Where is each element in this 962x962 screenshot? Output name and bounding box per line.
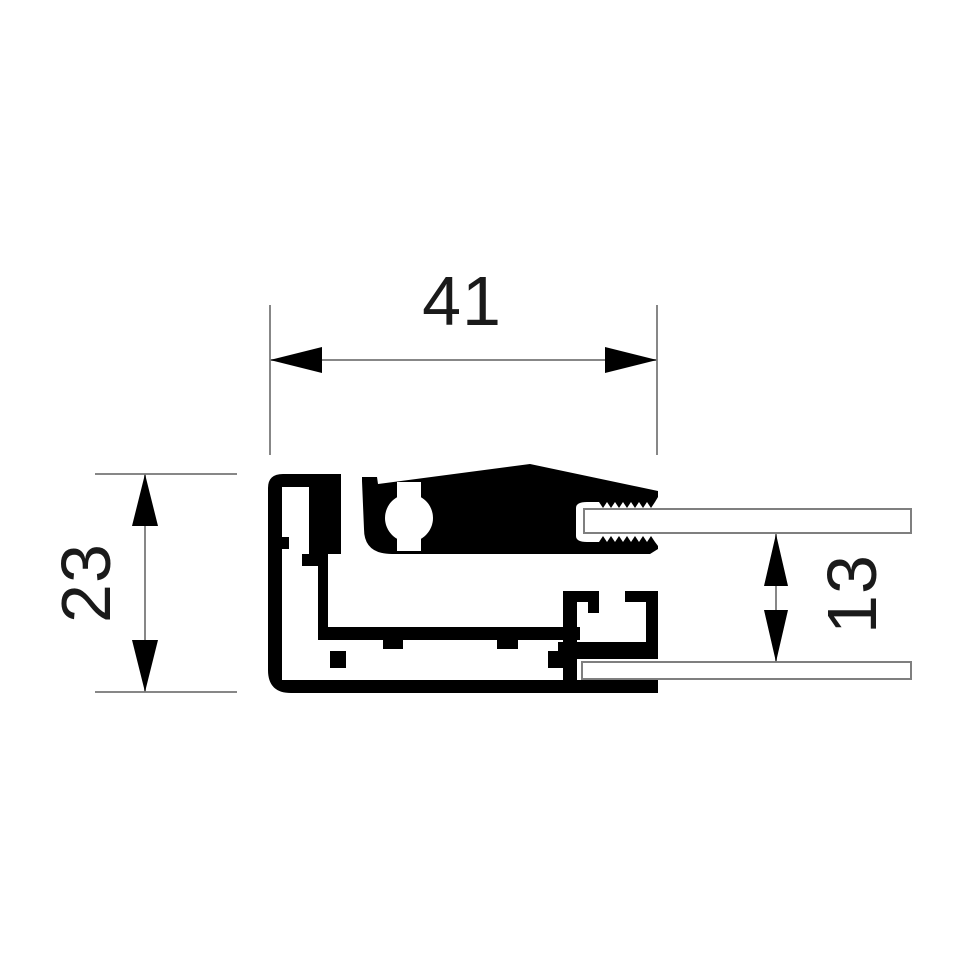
- gap-dimension-label: 13: [813, 554, 891, 634]
- glass-panel-top: [584, 509, 911, 533]
- clip-left-hook-lip: [588, 602, 599, 613]
- profile-right-wall: [563, 591, 577, 681]
- profile-slot-notch-overlay: [282, 537, 289, 549]
- profile-web-tooth-right: [497, 640, 518, 649]
- clip-left-hook-bar: [563, 591, 599, 602]
- glass-panel-bottom: [582, 662, 911, 679]
- height-dimension-label: 23: [47, 543, 125, 623]
- screw-channel-bottom-slot: [397, 535, 421, 551]
- technical-drawing-canvas: 41 23 13: [0, 0, 962, 962]
- profile-channel-bump-left: [330, 651, 346, 668]
- clip-foot-bar: [558, 642, 658, 659]
- width-dimension-label: 41: [422, 262, 502, 340]
- profile-web-tooth-left: [383, 640, 403, 649]
- screw-boss-hole: [385, 494, 433, 542]
- profile-inner-wall: [318, 554, 328, 632]
- technical-drawing-page: 41 23 13: [0, 0, 962, 962]
- profile-web: [318, 627, 580, 640]
